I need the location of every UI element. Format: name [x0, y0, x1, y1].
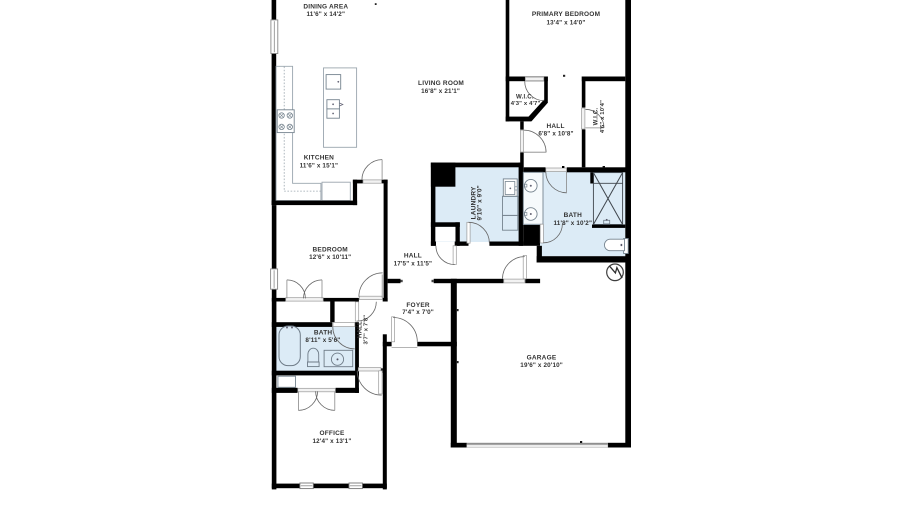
svg-text:LIVING ROOM: LIVING ROOM — [418, 80, 464, 87]
svg-text:DINING AREA: DINING AREA — [303, 4, 348, 11]
svg-text:BATH: BATH — [564, 212, 582, 219]
svg-text:17'5" x 11'5": 17'5" x 11'5" — [394, 260, 433, 267]
svg-text:19'6" x 20'10": 19'6" x 20'10" — [520, 362, 563, 369]
svg-text:HALL: HALL — [404, 253, 422, 260]
svg-text:HALL: HALL — [547, 123, 565, 130]
svg-text:12'6" x 10'11": 12'6" x 10'11" — [309, 254, 351, 261]
svg-text:8'11" x 5'6": 8'11" x 5'6" — [305, 337, 340, 344]
svg-text:3'7" x 7'8": 3'7" x 7'8" — [363, 315, 369, 345]
svg-text:4'3" x 4'7": 4'3" x 4'7" — [511, 101, 541, 107]
svg-text:KITCHEN: KITCHEN — [304, 155, 334, 162]
svg-text:11'6" x 14'2": 11'6" x 14'2" — [307, 11, 346, 18]
svg-text:9'10" x 9'0": 9'10" x 9'0" — [477, 185, 484, 220]
svg-text:BATH: BATH — [314, 330, 332, 337]
svg-text:7'4" x 7'0": 7'4" x 7'0" — [402, 309, 434, 316]
svg-text:11'6" x 15'1": 11'6" x 15'1" — [300, 163, 339, 170]
svg-text:13'4" x 14'0": 13'4" x 14'0" — [547, 19, 586, 26]
svg-text:GARAGE: GARAGE — [527, 354, 557, 361]
svg-text:OFFICE: OFFICE — [319, 430, 344, 437]
svg-text:PRIMARY BEDROOM: PRIMARY BEDROOM — [532, 11, 600, 18]
svg-text:W.I.C.: W.I.C. — [593, 108, 600, 126]
svg-text:BEDROOM: BEDROOM — [313, 247, 348, 254]
svg-text:W.I.C.: W.I.C. — [516, 93, 534, 100]
svg-text:6'8" x 10'8": 6'8" x 10'8" — [538, 131, 573, 138]
svg-text:FOYER: FOYER — [406, 302, 429, 309]
svg-text:12'4" x 13'1": 12'4" x 13'1" — [313, 438, 352, 445]
svg-text:4'6" x 10'4": 4'6" x 10'4" — [600, 100, 606, 133]
svg-text:11'8" x 10'2": 11'8" x 10'2" — [554, 220, 593, 227]
svg-text:HALL: HALL — [356, 321, 363, 338]
svg-text:16'8" x 21'1": 16'8" x 21'1" — [421, 88, 460, 95]
